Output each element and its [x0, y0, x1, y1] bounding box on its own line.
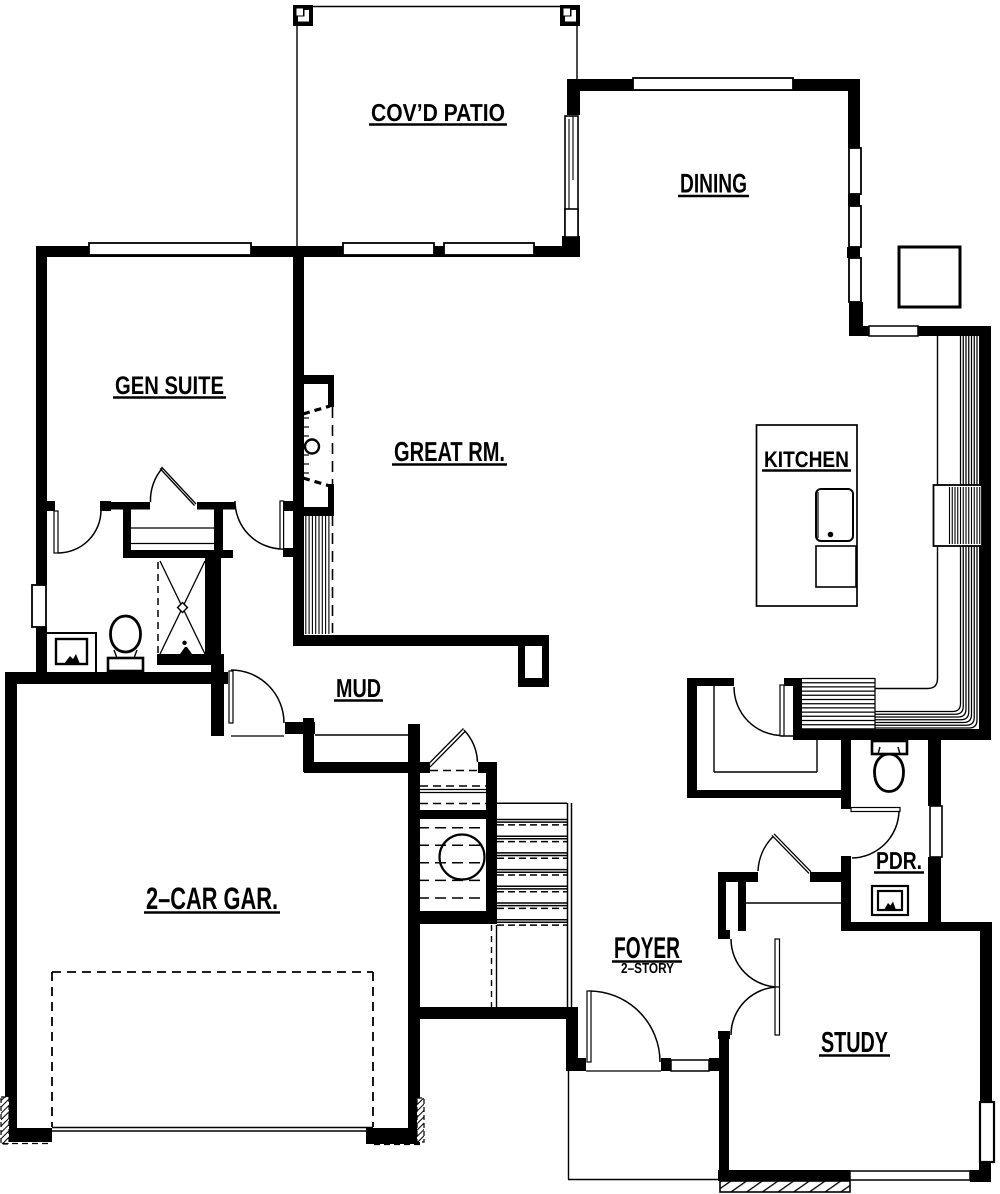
svg-text:2–CAR GAR.: 2–CAR GAR.	[146, 881, 278, 916]
svg-text:MUD: MUD	[336, 673, 381, 703]
svg-text:2–STORY: 2–STORY	[621, 961, 674, 977]
svg-text:GREAT RM.: GREAT RM.	[394, 436, 505, 467]
svg-text:GEN SUITE: GEN SUITE	[115, 372, 224, 400]
svg-text:DINING: DINING	[680, 169, 747, 199]
svg-text:PDR.: PDR.	[876, 848, 922, 875]
svg-text:STUDY: STUDY	[821, 1027, 888, 1059]
svg-text:KITCHEN: KITCHEN	[764, 447, 849, 472]
svg-text:COV’D PATIO: COV’D PATIO	[371, 100, 505, 127]
